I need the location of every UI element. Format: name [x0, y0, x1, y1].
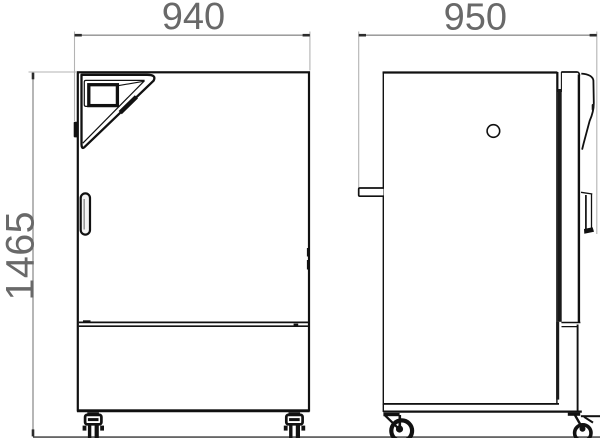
- svg-text:950: 950: [444, 0, 507, 38]
- svg-text:940: 940: [162, 0, 225, 38]
- svg-text:1465: 1465: [0, 211, 43, 300]
